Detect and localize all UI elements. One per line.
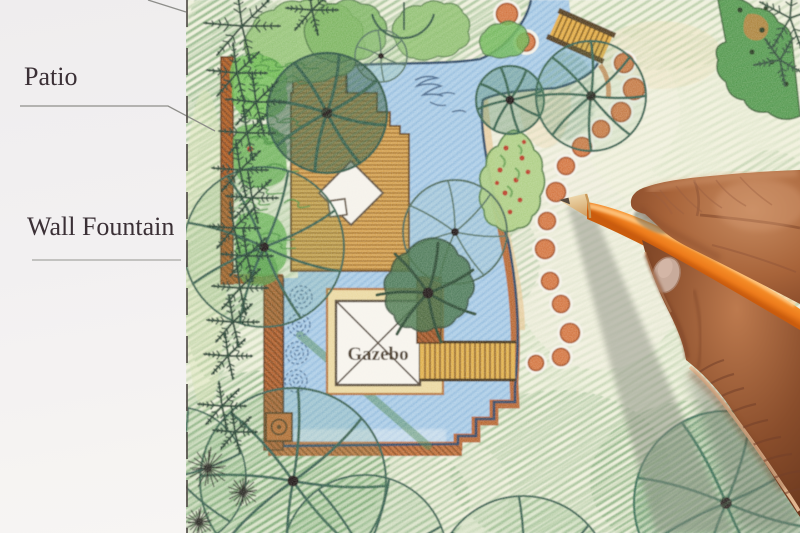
svg-text:Wall Fountain: Wall Fountain	[27, 212, 174, 241]
svg-text:Patio: Patio	[24, 62, 77, 91]
